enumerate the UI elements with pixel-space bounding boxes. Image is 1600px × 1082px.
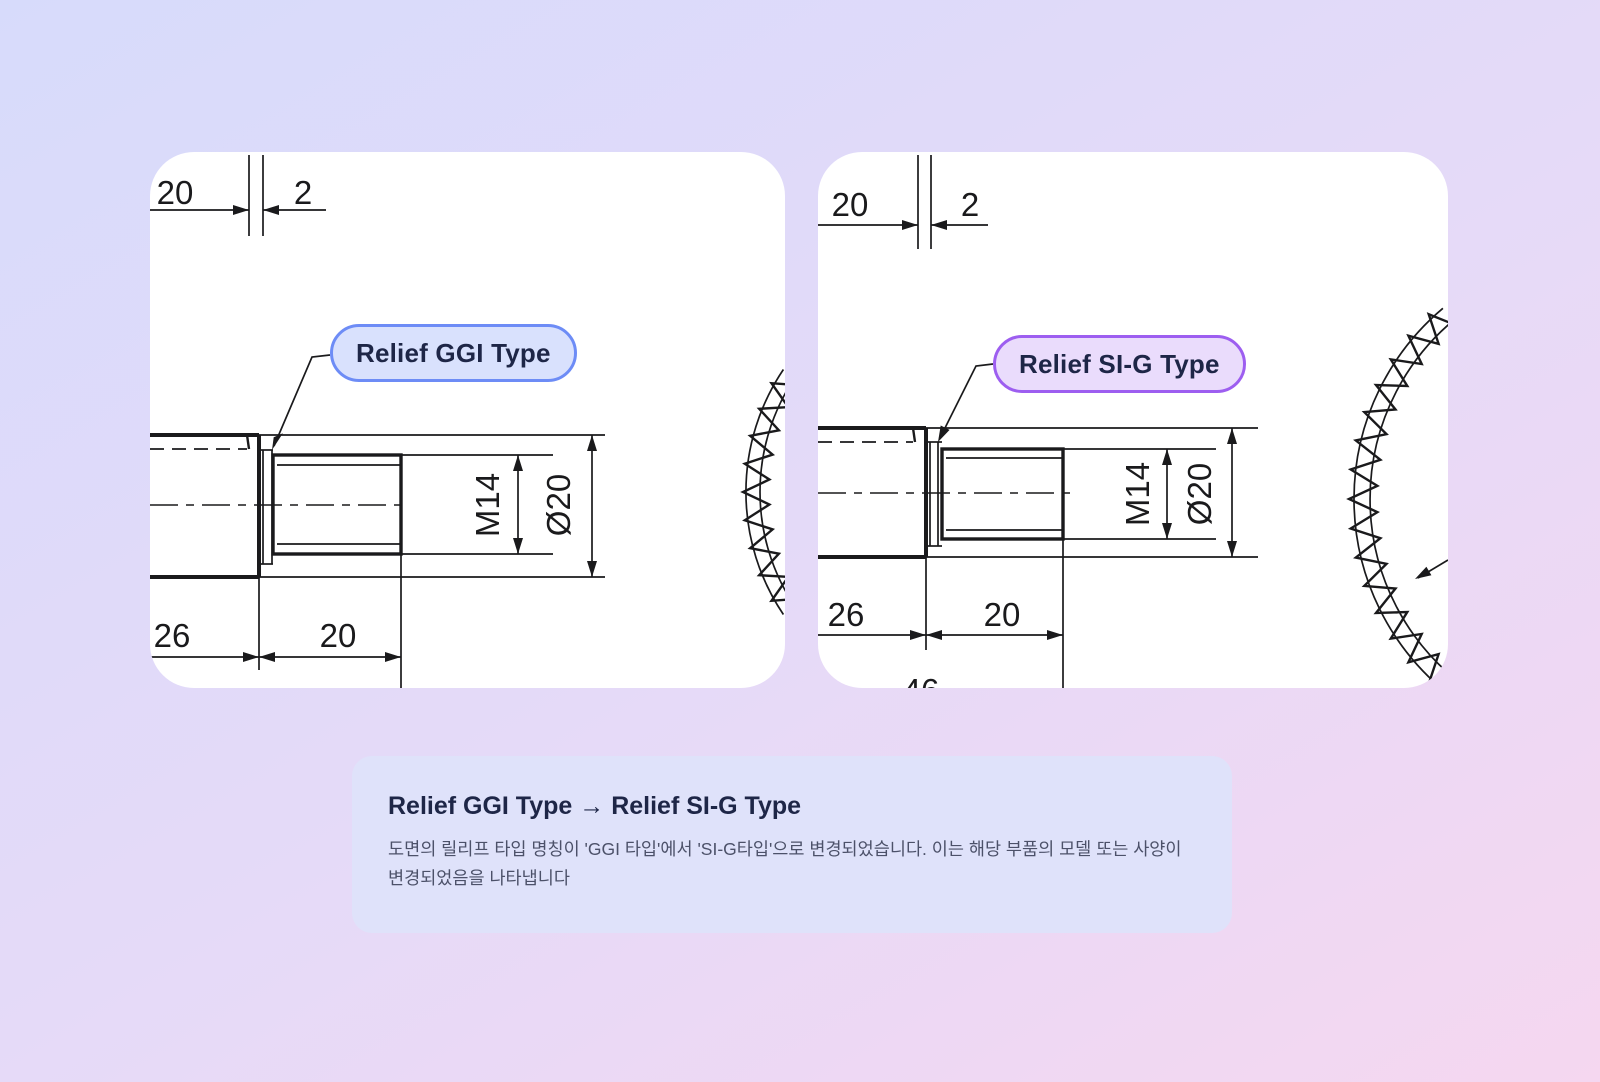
dim-46-clipped: 46 [903,672,940,688]
cad-drawing-ggi: 20 2 [150,152,785,688]
dim-26: 26 [828,596,865,633]
dimension-bottom: 26 20 46 [818,539,1063,688]
dim-20-top: 20 [832,186,869,223]
dim-26: 26 [154,617,191,654]
dimension-dia20: Ø20 [1181,428,1237,557]
change-note-body: 도면의 릴리프 타입 명칭이 'GGI 타입'에서 'SI-G타입'으로 변경되… [388,835,1196,893]
dim-20-bottom: 20 [984,596,1021,633]
drawing-panel-ggi: 20 2 [150,152,785,688]
dimension-top: 20 2 [818,155,988,249]
relief-ggi-label-text: Relief GGI Type [356,338,551,369]
dim-m14: M14 [469,473,506,537]
dim-dia20: Ø20 [540,474,577,536]
gear-partial [1349,308,1448,688]
dimension-bottom: 26 20 [150,554,401,688]
drawing-panel-sig: 20 2 [818,152,1448,688]
dimension-top: 20 2 [150,155,326,236]
dimension-m14: M14 [401,455,553,554]
thread-section [942,449,1063,539]
dim-20-bottom: 20 [320,617,357,654]
cad-drawing-sig: 20 2 [818,152,1448,688]
change-note-card: Relief GGI Type → Relief SI-G Type 도면의 릴… [352,756,1232,933]
dim-m14: M14 [1119,462,1156,526]
dim-2-top: 2 [294,174,312,211]
relief-sig-label: Relief SI-G Type [993,335,1246,393]
dim-2-top: 2 [961,186,979,223]
change-note-title: Relief GGI Type → Relief SI-G Type [388,792,1196,821]
dim-dia20: Ø20 [1181,463,1218,525]
dim-20-top: 20 [157,174,194,211]
shaft-outline [150,435,605,577]
leader-line [938,364,993,442]
relief-sig-label-text: Relief SI-G Type [1019,349,1220,380]
dimension-dia20: Ø20 [540,435,597,577]
gear-partial [743,369,785,616]
relief-ggi-label: Relief GGI Type [330,324,577,382]
